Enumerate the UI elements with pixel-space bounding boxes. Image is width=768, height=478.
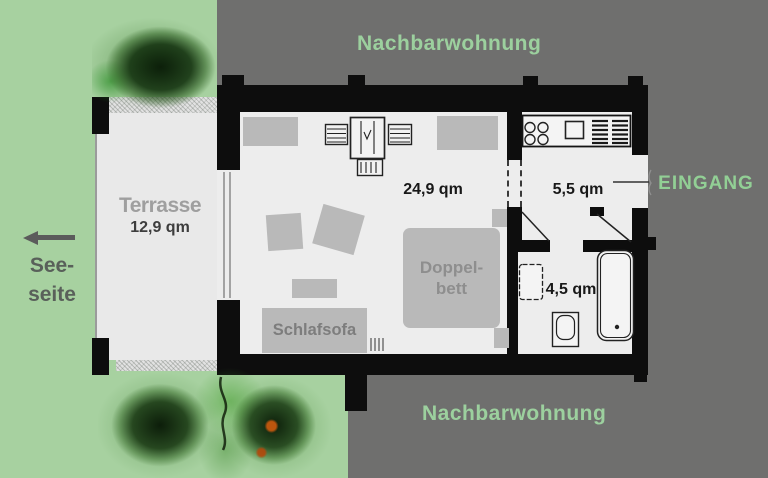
entrance-swing-mark: [649, 170, 651, 195]
lake-side-label: See- seite: [12, 251, 92, 309]
armchair-1: [266, 213, 303, 251]
wall-pier-top-3: [523, 76, 538, 87]
nightstand-bottom: [494, 328, 509, 348]
kitchen-floor: [522, 112, 632, 240]
double-bed-label-line1: Doppel-: [420, 257, 483, 278]
wall-pier-right: [648, 237, 656, 250]
living-kitchen-opening: [507, 160, 522, 207]
lake-arrow-shaft: [38, 235, 75, 240]
wall-pier-bottom-right: [634, 375, 647, 382]
entrance-label: EINGANG: [656, 173, 756, 195]
sleep-sofa-label-text: Schlafsofa: [273, 321, 356, 340]
lake-side-label-line2: seite: [12, 280, 92, 309]
kitchen-area-label: 5,5 qm: [543, 181, 613, 199]
double-bed-label: Doppel- bett: [403, 228, 500, 328]
terrace-wall-corner-bottom: [92, 338, 109, 375]
terrace-railing-top: [95, 97, 217, 113]
neighbor-apartment-label-top: Nachbarwohnung: [357, 32, 537, 56]
terrace-railing-bottom: [116, 360, 217, 371]
living-room-area-label: 24,9 qm: [393, 181, 473, 199]
terrace-name-label: Terrasse: [100, 194, 220, 218]
terrace-sliding-door: [217, 170, 240, 300]
wall-pier-top-4: [628, 76, 643, 87]
hall-wall-stub: [590, 207, 604, 216]
lake-arrow-head: [23, 231, 38, 245]
terrace-wall-corner-top: [92, 97, 109, 134]
wall-pier-bottom: [345, 375, 367, 411]
entrance-door-opening: [630, 155, 648, 208]
sleep-sofa: Schlafsofa: [262, 308, 367, 353]
lake-arrow-icon: [23, 230, 75, 245]
sofa-table: [292, 279, 337, 298]
wall-pier-top-2: [348, 75, 365, 87]
bathroom-wall-stub-left: [518, 240, 550, 252]
lake-side-label-line1: See-: [12, 251, 92, 280]
neighbor-apartment-label-bottom: Nachbarwohnung: [422, 402, 602, 426]
double-bed: Doppel- bett: [403, 228, 500, 328]
bathroom-wall-stub-right: [583, 240, 632, 252]
wardrobe-right: [437, 116, 498, 150]
garden-green-bottom: [217, 373, 348, 478]
bathroom-area-label: 4,5 qm: [540, 281, 602, 299]
floor-plan: Doppel- bett Schlafsofa: [0, 0, 768, 478]
double-bed-label-line2: bett: [436, 278, 467, 299]
sleep-sofa-label: Schlafsofa: [262, 308, 367, 353]
nightstand-top: [492, 209, 507, 227]
wall-pier-top-1: [222, 75, 244, 87]
terrace-area-label: 12,9 qm: [100, 219, 220, 237]
wardrobe-left: [243, 117, 298, 146]
